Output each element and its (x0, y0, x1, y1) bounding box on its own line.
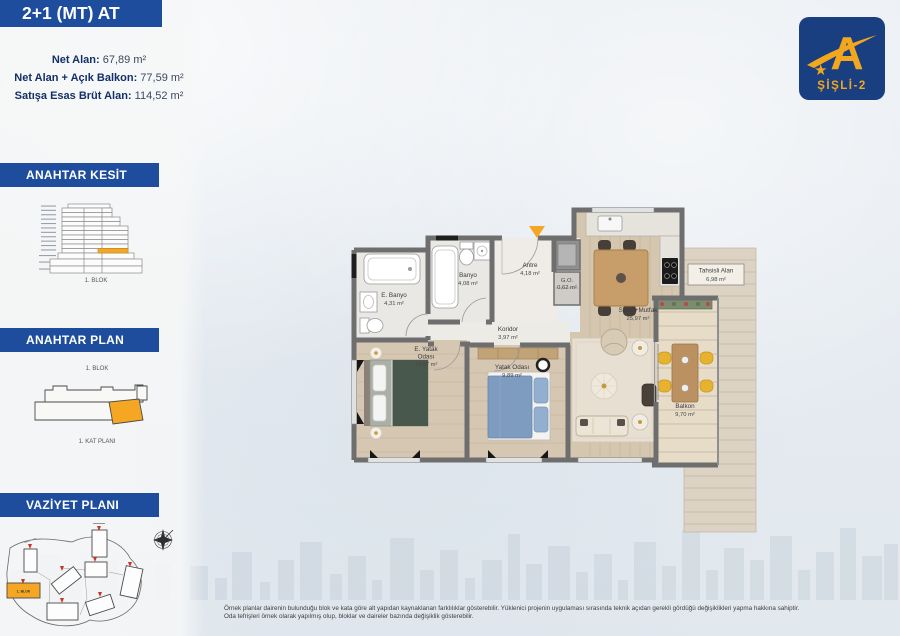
flower-box-icon (654, 300, 712, 309)
bathtub-icon (432, 246, 458, 308)
net-plus-balcony-line: Net Alan + Açık Balkon: 77,59 m² (0, 72, 198, 84)
label-balcony: Balkon (675, 403, 695, 410)
svg-text:0,62 m²: 0,62 m² (557, 285, 577, 291)
label-allocated-area: Tahsisli Alan (699, 268, 734, 275)
master-bed-icon (364, 360, 428, 426)
floor-plan: E. Banyo 4,31 m² Banyo 4,08 m² Antre 4,1… (340, 192, 770, 542)
round-rug-icon (591, 373, 617, 399)
unit-type-label: 2+1 (MT) AT (22, 3, 120, 24)
net-area-line: Net Alan: 67,89 m² (0, 54, 198, 66)
svg-text:Odası: Odası (418, 354, 435, 361)
svg-text:6,98 m²: 6,98 m² (706, 277, 726, 283)
svg-text:9,89 m²: 9,89 m² (502, 373, 522, 379)
label-bath: Banyo (459, 272, 477, 279)
key-plan-floor-caption: 1. KAT PLANI (79, 439, 116, 445)
label-entry: Antre (522, 262, 538, 269)
key-plan-block-caption: 1. BLOK (86, 366, 109, 372)
bath-window-shade-2 (436, 236, 458, 241)
svg-text:4,08 m²: 4,08 m² (458, 281, 478, 287)
armchair-icon (601, 329, 627, 355)
section-band-plan: ANAHTAR PLAN (0, 328, 159, 352)
brochure-page: 2+1 (MT) AT Net Alan: 67,89 m² Net Alan … (0, 0, 900, 636)
disclaimer: Örnek planlar dairenin bulunduğu blok ve… (224, 605, 874, 621)
vaziyet-title: VAZİYET PLANI (26, 498, 119, 512)
svg-text:3,97 m²: 3,97 m² (498, 335, 518, 341)
brand-logo: A ★ ŞİŞLİ-2 (799, 17, 885, 100)
ensuite-sink-icon (360, 292, 377, 312)
side-table-dot (638, 346, 642, 350)
svg-text:9,70 m²: 9,70 m² (675, 412, 695, 418)
stool-icon (537, 359, 549, 371)
ensuite-toilet-icon (360, 318, 383, 333)
net-plus-balcony-value: 77,59 m² (140, 72, 183, 84)
svg-text:4,31 m²: 4,31 m² (384, 301, 404, 307)
vanity-sink-icon (474, 242, 490, 260)
bedroom-closet-icon (478, 348, 558, 359)
label-wardrobe: G.O. (561, 278, 574, 284)
gross-area-value: 114,52 m² (135, 90, 184, 102)
unit-areas: Net Alan: 67,89 m² Net Alan + Açık Balko… (0, 54, 198, 108)
net-plus-balcony-label: Net Alan + Açık Balkon: (14, 72, 137, 84)
nightstand-dot (374, 351, 378, 355)
unit-type-band: 2+1 (MT) AT (0, 0, 162, 27)
section-band-kesit: ANAHTAR KESİT (0, 163, 159, 187)
kesit-caption: 1. BLOK (85, 278, 108, 284)
label-corridor: Koridor (498, 326, 518, 333)
gross-area-label: Satışa Esas Brüt Alan: (15, 90, 132, 102)
kesit-title: ANAHTAR KESİT (26, 168, 127, 182)
sofa-icon (576, 416, 628, 436)
plan-title: ANAHTAR PLAN (26, 333, 124, 347)
label-living-kitchen: Salon+Mutfak (619, 307, 659, 314)
logo-project-name: ŞİŞLİ-2 (817, 79, 866, 92)
net-area-value: 67,89 m² (103, 54, 146, 66)
disclaimer-line-1: Örnek planlar dairenin bulunduğu blok ve… (224, 605, 874, 613)
disclaimer-line-2: Oda tefrişleri örnek olarak yapılmış olu… (224, 613, 874, 621)
dining-table-icon (594, 240, 648, 316)
label-master-bedroom: E. Yatak (414, 346, 438, 353)
site-plan-diagram: 1. BLOK (2, 520, 197, 632)
ensuite-bathtub-icon (364, 254, 420, 284)
gross-area-line: Satışa Esas Brüt Alan: 114,52 m² (0, 90, 198, 102)
net-area-label: Net Alan: (52, 54, 100, 66)
star-icon: ★ (814, 62, 827, 79)
svg-text:14,87 m²: 14,87 m² (415, 362, 438, 368)
site-highlight-label: 1. BLOK (17, 590, 31, 594)
toilet-icon (460, 242, 474, 265)
side-table-dot-2 (638, 420, 642, 424)
highlighted-unit (109, 399, 143, 424)
svg-text:25,97 m²: 25,97 m² (627, 316, 650, 322)
nightstand-dot-2 (374, 431, 378, 435)
bed-icon (488, 372, 550, 440)
building-section-diagram: 1. BLOK (38, 196, 163, 286)
highlighted-floor-cell (98, 249, 128, 254)
cooktop-icon (662, 258, 678, 284)
logo-letter: A (830, 27, 863, 79)
building-floors (50, 204, 142, 273)
label-bedroom: Yatak Odası (495, 364, 529, 371)
bath-window-shade (352, 254, 357, 278)
section-band-vaziyet: VAZİYET PLANI (0, 493, 159, 517)
shaft-box (554, 240, 580, 270)
label-ensuite-bath: E. Banyo (381, 292, 407, 299)
svg-text:4,18 m²: 4,18 m² (520, 271, 540, 277)
compass-icon (153, 529, 173, 551)
key-plan-diagram: 1. BLOK 1. KAT PLANI (25, 358, 175, 448)
